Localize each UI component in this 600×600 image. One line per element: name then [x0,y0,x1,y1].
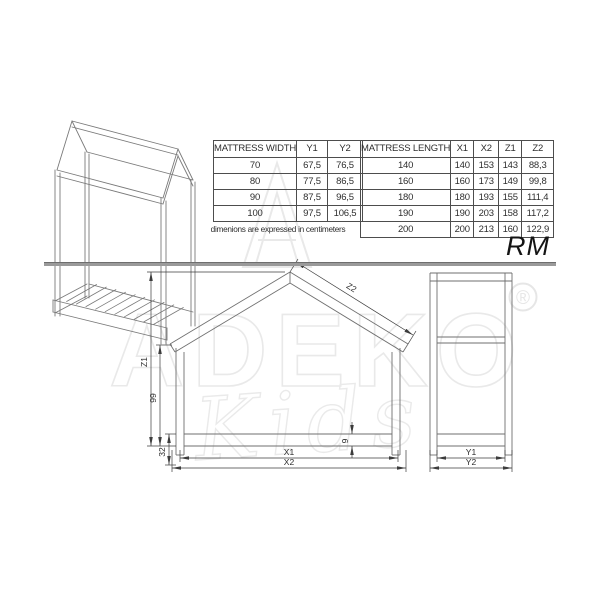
table-cell: 158 [499,206,522,222]
table-cell: 190 [451,206,474,222]
table-cell: 67,5 [297,158,328,174]
dim-label-rail-height: 9 [340,438,350,443]
col-header: MATTRESS LENGTH [361,141,451,158]
table-cell: 80 [214,174,297,190]
table-cell: 117,2 [522,206,554,222]
dim-label-y2: Y2 [466,457,477,467]
table-cell: 143 [499,158,522,174]
col-header: Y2 [328,141,363,158]
table-row: 140 140 153 143 88,3 [361,158,554,174]
dim-label-x1: X1 [284,447,295,457]
table-cell: 76,5 [328,158,363,174]
table-cell: 140 [451,158,474,174]
table-cell: 99,8 [522,174,554,190]
table-row: 160 160 173 149 99,8 [361,174,554,190]
table-cell: 106,5 [328,206,363,222]
table-cell: 111,4 [522,190,554,206]
table-cell: 70 [214,158,297,174]
table-cell: 190 [361,206,451,222]
table-cell: 180 [361,190,451,206]
table-cell: 160 [451,174,474,190]
page: ADEKO ® Kids [0,0,600,600]
table-cell: 97,5 [297,206,328,222]
table-header-row: MATTRESS WIDTH Y1 Y2 [214,141,363,158]
mattress-width-table: MATTRESS WIDTH Y1 Y2 70 67,5 76,5 80 77,… [213,140,363,222]
col-header: X1 [451,141,474,158]
table-cell: 86,5 [328,174,363,190]
table-row: 100 97,5 106,5 [214,206,363,222]
table-cell: 100 [214,206,297,222]
table-row: 80 77,5 86,5 [214,174,363,190]
table-cell: 153 [474,158,499,174]
col-header: MATTRESS WIDTH [214,141,297,158]
table-cell: 160 [361,174,451,190]
table-cell: 140 [361,158,451,174]
watermark-sub: Kids [189,365,428,481]
table-cell: 173 [474,174,499,190]
model-name: RM [400,231,550,262]
table-cell: 90 [214,190,297,206]
units-caption: dimenions are expressed in centimeters [208,224,348,234]
table-cell: 149 [499,174,522,190]
table-cell: 180 [451,190,474,206]
dim-label-x2: X2 [284,457,295,467]
table-row: 190 190 203 158 117,2 [361,206,554,222]
col-header: Y1 [297,141,328,158]
mattress-length-table: MATTRESS LENGTH X1 X2 Z1 Z2 140 140 153 … [360,140,554,238]
col-header: Z1 [499,141,522,158]
table-cell: 96,5 [328,190,363,206]
table-cell: 203 [474,206,499,222]
table-header-row: MATTRESS LENGTH X1 X2 Z1 Z2 [361,141,554,158]
table-row: 90 87,5 96,5 [214,190,363,206]
technical-drawing: ADEKO ® Kids [0,0,600,600]
table-cell: 193 [474,190,499,206]
dim-label-wall-height: 99 [148,393,158,403]
col-header: Z2 [522,141,554,158]
table-row: 180 180 193 155 111,4 [361,190,554,206]
table-cell: 155 [499,190,522,206]
table-cell: 88,3 [522,158,554,174]
col-header: X2 [474,141,499,158]
dim-label-y1: Y1 [466,447,477,457]
table-cell: 77,5 [297,174,328,190]
table-cell: 87,5 [297,190,328,206]
section-divider [44,262,556,266]
dim-label-z1: Z1 [139,357,149,367]
svg-text:®: ® [516,288,530,309]
table-row: 70 67,5 76,5 [214,158,363,174]
dim-label-rail-floor: 32 [157,447,167,457]
